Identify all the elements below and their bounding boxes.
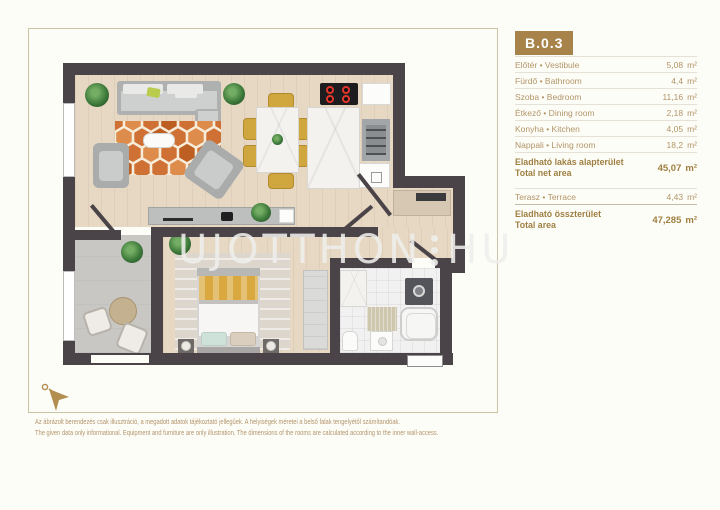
terrace-row: Terasz • Terrace 4,43m² bbox=[515, 188, 697, 204]
disclaimer-en: The given data only informational. Equip… bbox=[35, 428, 438, 439]
room-label: Étkező • Dining room bbox=[515, 108, 595, 118]
bath-mat bbox=[367, 307, 397, 331]
area-table: Előtér • Vestibule 5,08m² Fürdő • Bathro… bbox=[515, 56, 697, 234]
bedroom-wardrobe bbox=[303, 270, 328, 350]
stove bbox=[320, 83, 358, 105]
tv-sideboard bbox=[148, 207, 295, 225]
room-label: Szoba • Bedroom bbox=[515, 92, 581, 102]
disclaimer-hu: Az ábrázolt berendezés csak illusztráció… bbox=[35, 417, 438, 428]
toilet bbox=[342, 331, 358, 351]
coffee-table bbox=[143, 133, 175, 148]
bed-blanket bbox=[199, 276, 258, 300]
nightstand-left bbox=[178, 339, 194, 353]
shaft bbox=[407, 355, 443, 367]
watermark-text-left: UJOTTHON bbox=[178, 227, 422, 273]
net-area-row: Eladható lakás alapterület Total net are… bbox=[515, 152, 697, 182]
lamp bbox=[181, 341, 191, 351]
bathtub bbox=[400, 307, 438, 341]
entrance-wardrobe bbox=[393, 190, 451, 216]
terrace-label: Terasz • Terrace bbox=[515, 192, 576, 202]
table-row: Étkező • Dining room 2,18m² bbox=[515, 104, 697, 120]
plant-sideboard bbox=[251, 203, 271, 222]
nightstand-right bbox=[263, 339, 279, 353]
bed-pillow bbox=[201, 332, 227, 346]
armchair-left bbox=[93, 143, 129, 188]
table-row: Előtér • Vestibule 5,08m² bbox=[515, 56, 697, 72]
disclaimer: Az ábrázolt berendezés csak illusztráció… bbox=[35, 417, 438, 438]
room-label: Fürdő • Bathroom bbox=[515, 76, 582, 86]
plant-living-right bbox=[223, 83, 245, 105]
bed bbox=[197, 268, 260, 353]
speaker bbox=[221, 212, 233, 221]
table-row: Nappali • Living room 18,2m² bbox=[515, 136, 697, 152]
north-arrow-icon bbox=[36, 381, 80, 413]
plant-terrace bbox=[121, 241, 143, 263]
room-label: Konyha • Kitchen bbox=[515, 124, 580, 134]
net-area-label-hu: Eladható lakás alapterület bbox=[515, 157, 624, 168]
room-label: Nappali • Living room bbox=[515, 140, 595, 150]
plant-living-left bbox=[85, 83, 109, 107]
kitchen-sink-unit bbox=[362, 119, 390, 161]
floor-plan bbox=[63, 63, 465, 375]
bathroom-sink bbox=[370, 331, 393, 351]
kitchen-counter bbox=[307, 107, 360, 189]
table-row: Szoba • Bedroom 11,16m² bbox=[515, 88, 697, 104]
dining-chair bbox=[268, 173, 294, 189]
window-living bbox=[63, 103, 75, 177]
table-plant bbox=[272, 134, 283, 145]
washing-machine bbox=[405, 278, 433, 305]
unit-id-badge: B.0.3 bbox=[515, 31, 573, 55]
fridge bbox=[362, 83, 391, 105]
tv bbox=[163, 218, 193, 221]
table-row: Konyha • Kitchen 4,05m² bbox=[515, 120, 697, 136]
total-area-label-en: Total area bbox=[515, 220, 601, 231]
bed-pillow bbox=[230, 332, 256, 346]
watermark-text-right: HU bbox=[447, 227, 514, 273]
total-area-row: Eladható összterület Total area 47,285m² bbox=[515, 204, 697, 234]
table-row: Fürdő • Bathroom 4,4m² bbox=[515, 72, 697, 88]
total-area-label-hu: Eladható összterület bbox=[515, 209, 601, 220]
decor-object bbox=[279, 209, 294, 223]
net-area-label-en: Total net area bbox=[515, 168, 624, 179]
lamp bbox=[266, 341, 276, 351]
terrace-table bbox=[109, 297, 137, 325]
room-label: Előtér • Vestibule bbox=[515, 60, 579, 70]
watermark: UJOTTHON HU bbox=[178, 227, 515, 273]
shower-area bbox=[340, 270, 367, 307]
watermark-dots bbox=[431, 235, 438, 266]
window-terrace bbox=[63, 271, 75, 341]
